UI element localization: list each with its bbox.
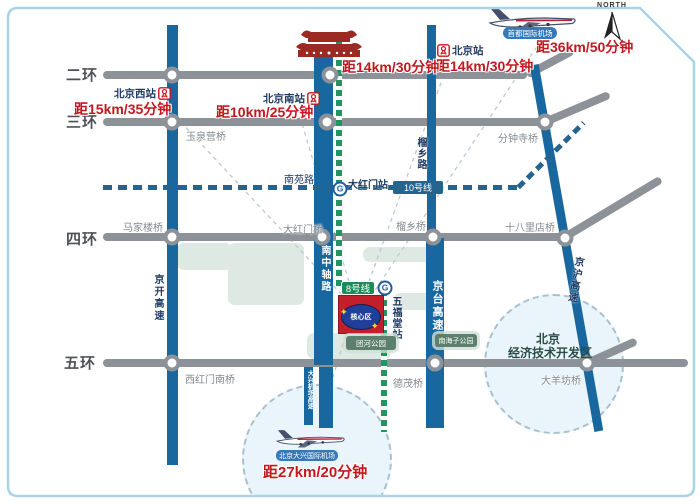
metro-line8-badge: 8号线 — [341, 281, 375, 295]
distance-daxing-airport: 距27km/20分钟 — [263, 461, 367, 482]
metro-station-dahongmen: 大红门站 — [348, 176, 388, 191]
compass-north-label: NORTH — [592, 2, 632, 9]
junction-marker — [164, 355, 181, 372]
bridge-label-liuxiang: 榴乡桥 — [396, 218, 426, 233]
greenbelt-zone — [363, 247, 431, 262]
bridge-label-yuquanying: 玉泉营桥 — [186, 128, 226, 143]
ring4-label: 四环 — [66, 228, 98, 249]
ring5-label: 五环 — [64, 352, 96, 373]
bridge-label-dayangfang: 大羊坊桥 — [541, 372, 581, 387]
park-badge-nanhaizi: 南海子公园 — [435, 334, 477, 347]
bda-label-line2: 经济技术开发区 — [508, 344, 592, 361]
bridge-label-majialou: 马家楼桥 — [123, 219, 163, 234]
ring3-road-bend — [543, 91, 611, 126]
junction-marker — [164, 229, 181, 246]
distance-west: 距15km/35分钟 — [74, 99, 171, 119]
core-area-marker: 核心区 ✦ ✦ — [338, 295, 384, 334]
tiananmen-icon — [293, 27, 365, 57]
ring2-label: 二环 — [66, 64, 98, 85]
compass-needle-icon — [599, 10, 625, 42]
road-label-jingtai: 京台高速 — [429, 280, 445, 332]
daxing-airport-badge: 北京大兴国际机场 — [276, 450, 338, 461]
greenbelt-zone — [228, 243, 304, 305]
road-label-nanyuan: 南苑路 — [284, 171, 314, 186]
sparkle-icon: ✦ — [340, 308, 348, 317]
road-label-daxing-expwy: 大兴机场高速 — [304, 370, 314, 409]
greenbelt-zone — [177, 243, 232, 270]
ring4-road-bend — [563, 176, 663, 241]
bridge-label-xihongmen-south: 西红门南桥 — [185, 371, 235, 386]
road-label-nanzhongzhou: 南中轴路 — [317, 245, 332, 293]
central-axis-road-south — [319, 367, 333, 428]
map-content: 二环 三环 四环 五环 玉泉营桥 马家楼桥 大红门桥 榴乡桥 十八里店桥 分钟寺… — [0, 0, 700, 504]
road-label-jingkai: 京开高速 — [150, 274, 165, 322]
sparkle-icon: ✦ — [371, 322, 379, 331]
metro-logo-icon: G — [378, 281, 393, 296]
compass: NORTH — [592, 2, 632, 47]
bridge-label-shibalidian: 十八里店桥 — [505, 219, 555, 234]
junction-marker — [164, 67, 181, 84]
distance-south: 距10km/25分钟 — [216, 102, 313, 122]
jingtai-expressway-road — [426, 238, 444, 428]
junction-marker — [537, 114, 554, 131]
bridge-label-dahongmen: 大红门桥 — [283, 221, 323, 236]
beijing-transit-map: 二环 三环 四环 五环 玉泉营桥 马家楼桥 大红门桥 榴乡桥 十八里店桥 分钟寺… — [0, 0, 700, 504]
metro-station-wufutang: 五福堂站 — [388, 296, 403, 340]
bridge-label-fenzhongsi: 分钟寺桥 — [498, 130, 538, 145]
junction-marker — [557, 230, 574, 247]
distance-beijing-station: 距14km/30分钟 — [436, 56, 533, 76]
park-badge-west: 团河公园 — [346, 336, 396, 350]
metro-line10-badge: 10号线 — [393, 181, 443, 194]
distance-tiananmen: 距14km/30分钟 — [342, 57, 439, 77]
junction-marker — [427, 355, 444, 372]
junction-marker — [425, 229, 442, 246]
bridge-label-demao: 德茂桥 — [393, 375, 423, 390]
airplane-icon — [274, 426, 348, 450]
metro-logo-icon: G — [333, 182, 348, 197]
junction-marker — [319, 114, 336, 131]
junction-marker — [322, 67, 339, 84]
road-label-liuxiang: 榴乡路 — [413, 137, 428, 170]
